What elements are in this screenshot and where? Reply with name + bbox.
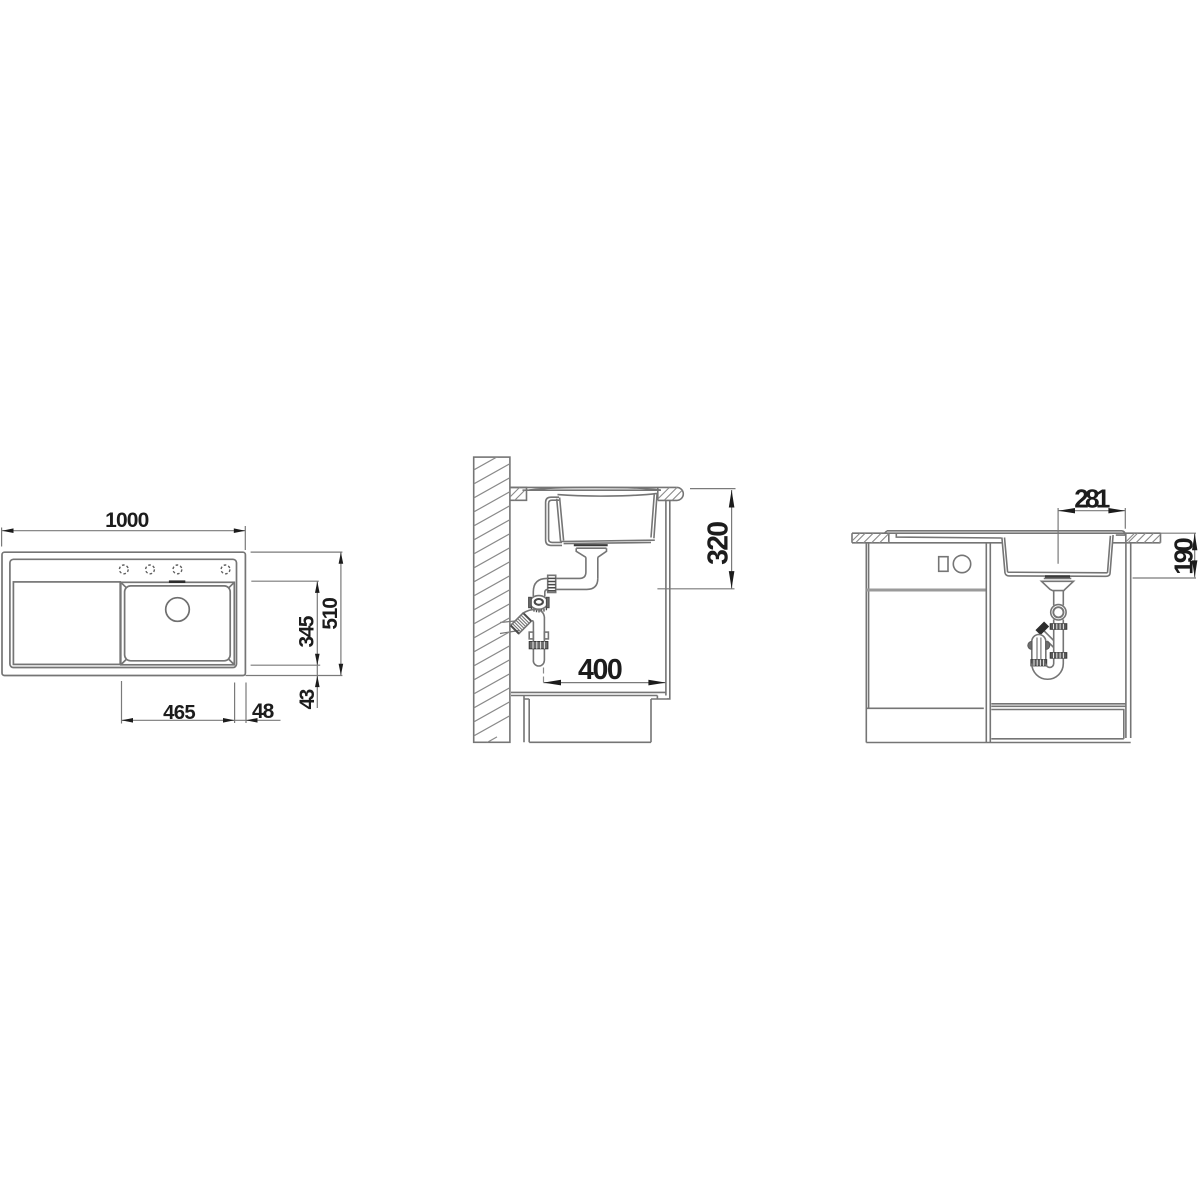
svg-text:320: 320 [701, 521, 733, 565]
svg-text:281: 281 [1074, 483, 1110, 513]
svg-text:345: 345 [296, 616, 319, 648]
svg-text:510: 510 [319, 597, 342, 630]
svg-text:48: 48 [252, 700, 275, 723]
svg-text:1000: 1000 [105, 509, 149, 532]
svg-text:190: 190 [1169, 537, 1199, 574]
svg-text:465: 465 [163, 702, 196, 724]
svg-text:43: 43 [296, 689, 319, 710]
svg-text:400: 400 [578, 654, 623, 686]
